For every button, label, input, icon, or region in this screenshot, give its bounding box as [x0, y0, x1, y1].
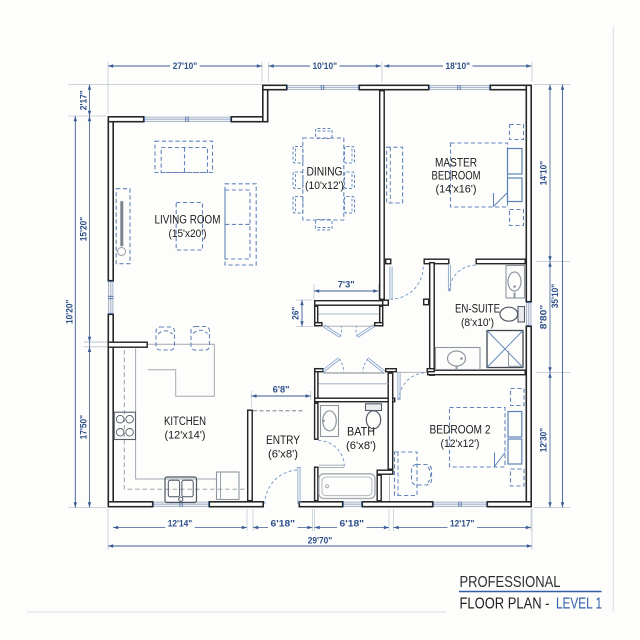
svg-text:12'30": 12'30"	[539, 428, 550, 453]
svg-text:6'8": 6'8"	[273, 385, 290, 396]
svg-text:15'20": 15'20"	[79, 217, 90, 242]
svg-text:10'20": 10'20"	[64, 300, 75, 325]
svg-text:8'80": 8'80"	[539, 305, 550, 330]
svg-text:DINING: DINING	[307, 167, 343, 179]
svg-text:(14'x16'): (14'x16')	[436, 184, 477, 196]
svg-text:(15'x20'): (15'x20')	[169, 228, 207, 240]
svg-text:14'10": 14'10"	[539, 161, 550, 186]
svg-text:6'18": 6'18"	[271, 518, 296, 529]
svg-text:35'10": 35'10"	[550, 284, 561, 309]
svg-text:(12'x12'): (12'x12')	[441, 438, 480, 450]
svg-text:(6'x8'): (6'x8')	[268, 449, 298, 461]
svg-text:(12'x14'): (12'x14')	[165, 430, 206, 442]
svg-text:MASTER: MASTER	[435, 158, 477, 170]
svg-text:10'10": 10'10"	[313, 61, 338, 72]
svg-text:(6'x8'): (6'x8')	[346, 440, 376, 452]
svg-text:17'50": 17'50"	[79, 415, 90, 440]
svg-text:LEVEL 1: LEVEL 1	[556, 596, 602, 613]
svg-text:(10'x12'): (10'x12')	[305, 180, 344, 192]
svg-text:18'10": 18'10"	[446, 61, 471, 72]
svg-text:(8'x10'): (8'x10')	[461, 317, 494, 329]
svg-text:EN-SUITE: EN-SUITE	[455, 304, 500, 316]
svg-text:BATH: BATH	[347, 427, 375, 439]
svg-text:12'14": 12'14"	[168, 518, 193, 529]
svg-text:26": 26"	[291, 307, 302, 320]
svg-text:2'17": 2'17"	[79, 90, 90, 110]
svg-text:KITCHEN: KITCHEN	[164, 416, 206, 428]
svg-text:PROFESSIONAL: PROFESSIONAL	[460, 574, 561, 591]
svg-text:6'18": 6'18"	[340, 518, 365, 529]
svg-text:BEDROOM: BEDROOM	[432, 171, 481, 183]
svg-text:FLOOR PLAN -: FLOOR PLAN -	[460, 596, 550, 613]
svg-text:ENTRY: ENTRY	[266, 435, 300, 447]
svg-text:7'3": 7'3"	[338, 280, 355, 291]
svg-text:29'70": 29'70"	[308, 536, 333, 547]
svg-text:12'17": 12'17"	[450, 518, 475, 529]
svg-text:BEDROOM 2: BEDROOM 2	[430, 425, 491, 437]
svg-text:27'10": 27'10"	[173, 61, 198, 72]
svg-text:LIVING ROOM: LIVING ROOM	[155, 215, 221, 227]
